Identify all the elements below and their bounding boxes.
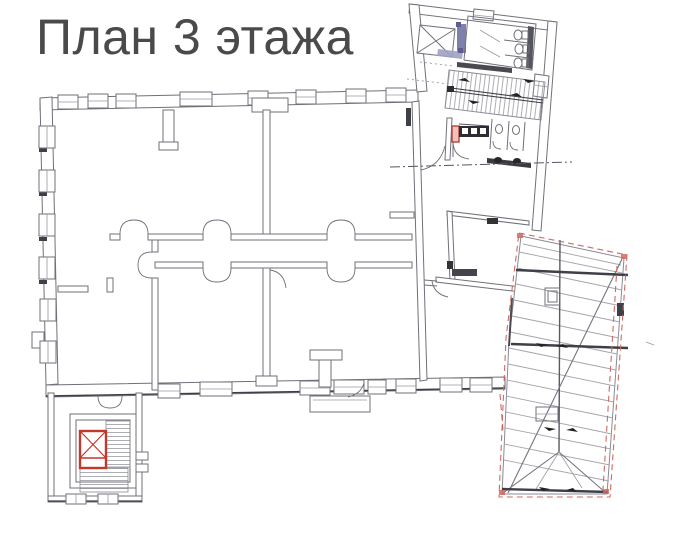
chimney-pier [163,110,174,144]
roof-wing [499,233,654,497]
toilet-stalls [490,119,525,151]
west-stair-tower [48,393,148,504]
floorplan-page: План 3 этажа [0,0,677,546]
door-arcs [120,146,448,297]
washbasin-counter [459,124,489,137]
north-staircase [445,70,545,120]
radiator-red [452,126,459,142]
sanitary-row [445,118,531,168]
west-staircase-upper-flight [106,421,130,467]
west-elevator-shaft [80,431,106,468]
interior-partitions [58,98,414,390]
tower-door-arc [110,396,122,408]
tower-door-arc [98,396,110,408]
west-staircase-lower-flight [80,468,128,492]
north-wing [409,4,557,231]
floorplan-drawing [0,0,677,546]
